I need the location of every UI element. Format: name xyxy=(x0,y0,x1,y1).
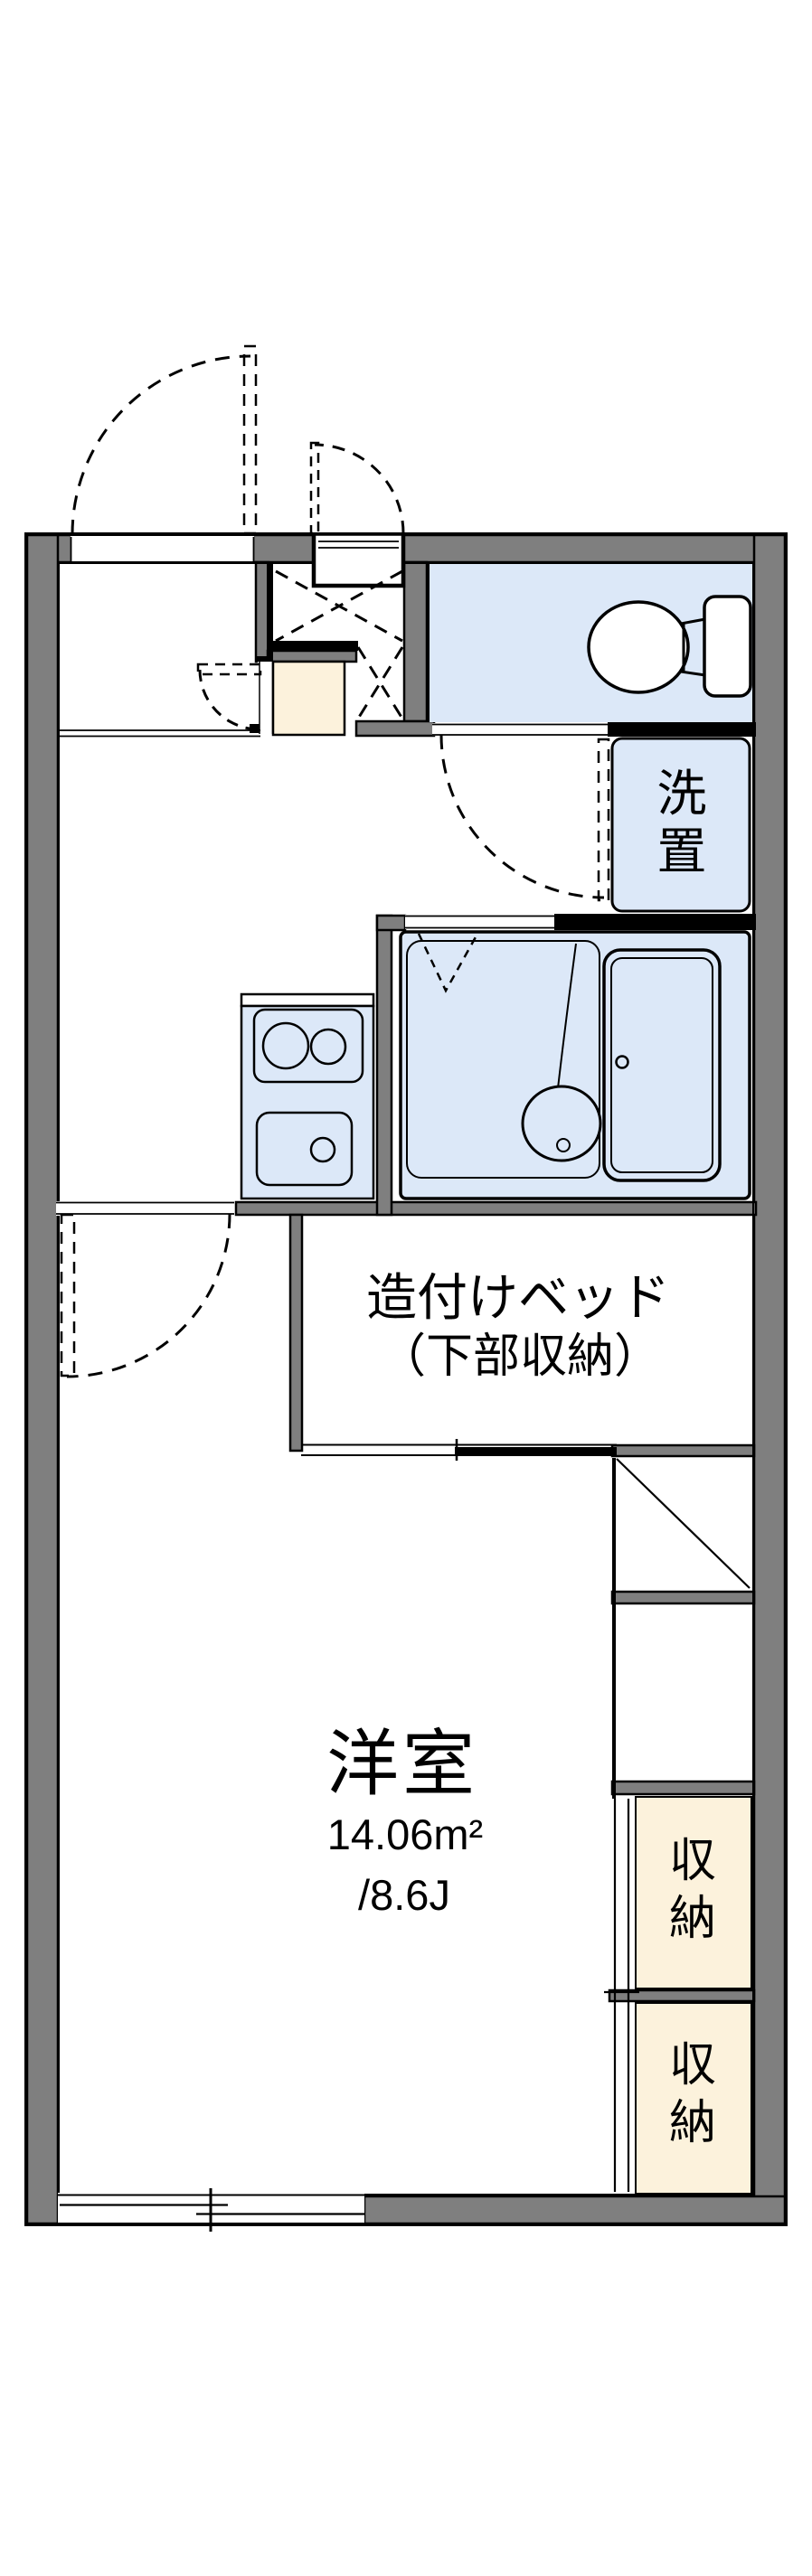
wall-left xyxy=(27,535,58,2223)
washer-label-char1: 洗 xyxy=(656,766,706,822)
wall-entry-left-edge xyxy=(267,562,273,660)
toilet-bowl xyxy=(589,602,688,692)
wall-column-divider-1 xyxy=(612,1592,754,1603)
room-area-sqm-label: 14.06m² xyxy=(327,1810,483,1858)
entry-wall-cap xyxy=(256,656,273,662)
door-swing-top-left xyxy=(72,346,256,534)
wall-bottom xyxy=(364,2196,785,2223)
floor-plan-page: 洗 置 造付けベッド （下部収納） 洋室 14.06m² /8.6J 収 納 収… xyxy=(0,0,812,2576)
closet-lower-char1: 収 xyxy=(669,2039,716,2092)
stove-burner-large xyxy=(263,1023,308,1068)
shelf-diagonal xyxy=(617,1459,750,1588)
wall-bed-left xyxy=(290,1215,302,1451)
door-swing-toilet xyxy=(441,735,609,900)
stove-burner-small xyxy=(311,1029,345,1064)
bath-doorway-opening xyxy=(405,915,554,929)
wall-bed-bottom-right xyxy=(612,1445,754,1456)
wash-basin xyxy=(523,1086,600,1161)
corridor-doorway-opening xyxy=(56,1201,234,1216)
toilet-tank xyxy=(704,597,751,696)
door-swing-entrance xyxy=(311,443,403,533)
wall-mid-horizontal xyxy=(236,1202,756,1215)
closet-lower-char2: 納 xyxy=(669,2097,716,2149)
wall-column-divider-2 xyxy=(612,1782,754,1794)
sink-drain xyxy=(311,1138,335,1161)
door-swing-main-room xyxy=(61,1214,230,1377)
entry-step xyxy=(268,651,356,662)
window-top xyxy=(71,536,254,563)
bed-label-line1: 造付けベッド xyxy=(366,1269,670,1326)
kitchen-sink xyxy=(257,1113,352,1185)
closet-upper-char1: 収 xyxy=(669,1835,716,1887)
room-name-label: 洋室 xyxy=(326,1724,478,1804)
washer-label-char2: 置 xyxy=(656,823,706,879)
wall-toilet-left xyxy=(404,562,427,721)
toilet-doorway-opening xyxy=(432,723,608,736)
door-swing-entry-room xyxy=(198,664,260,733)
dashed-symbols-layer xyxy=(61,346,609,1377)
bed-slide-panel xyxy=(455,1447,617,1456)
closet-upper-char2: 納 xyxy=(669,1893,716,1945)
entry-step-edge xyxy=(268,641,358,651)
bed-label-line2: （下部収納） xyxy=(379,1330,661,1383)
wall-toilet-bottom xyxy=(608,722,756,737)
wall-right xyxy=(754,535,785,2223)
bathtub-faucet xyxy=(617,1057,628,1068)
entry-hall-step-line xyxy=(58,730,260,737)
door-hinge-mark xyxy=(250,724,260,733)
wall-entry-left xyxy=(256,562,269,662)
shoe-cabinet xyxy=(273,662,345,735)
wall-bath-stub xyxy=(377,916,405,930)
wall-entry-bottom-right xyxy=(356,721,434,736)
floor-plan-drawing: 洗 置 造付けベッド （下部収納） 洋室 14.06m² /8.6J 収 納 収… xyxy=(0,0,812,2576)
kitchen-counter-top xyxy=(241,994,373,1006)
room-area-tatami-label: /8.6J xyxy=(358,1871,450,1919)
toilet-fixture xyxy=(589,597,751,696)
wall-washer-bottom xyxy=(554,914,756,930)
wall-kitchen-vertical xyxy=(377,916,392,1215)
genkan-floor-x-lower xyxy=(358,647,402,719)
